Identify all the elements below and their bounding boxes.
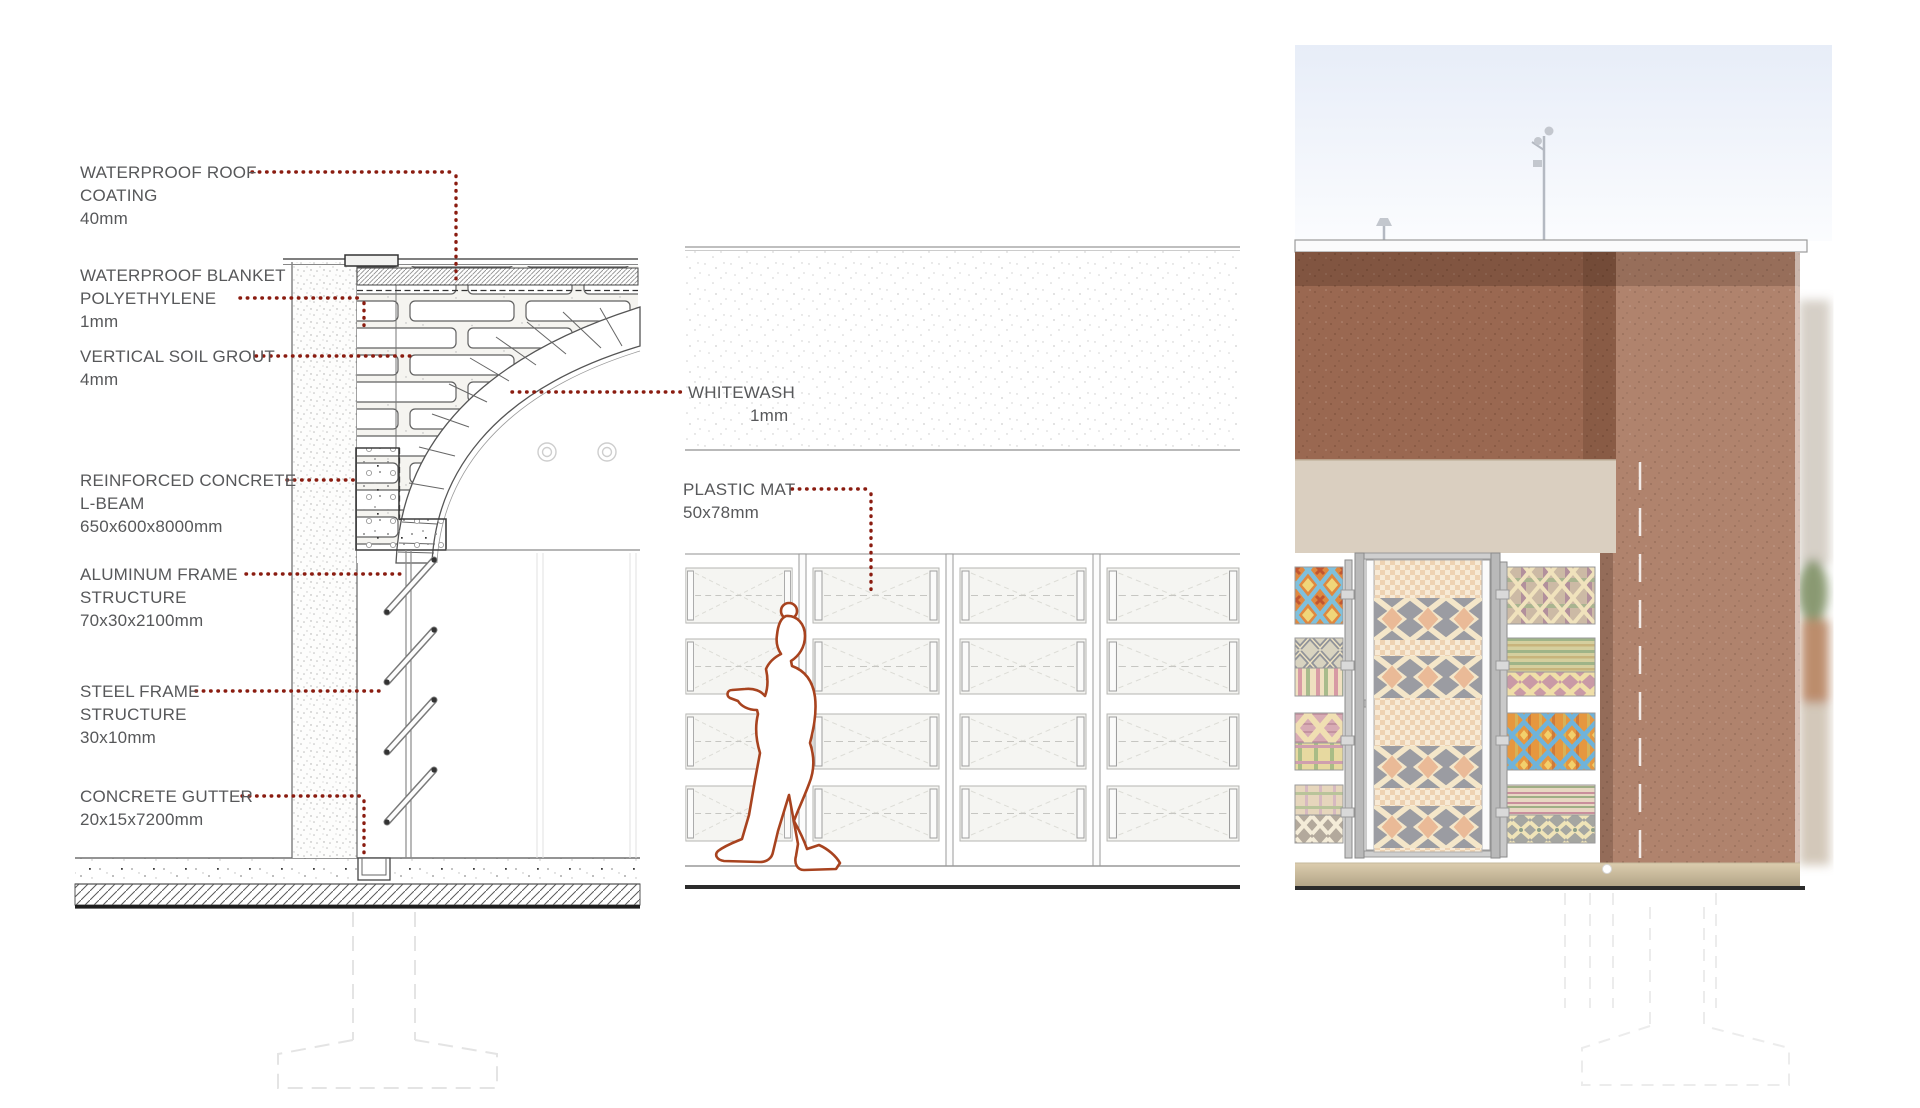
callout-aluminum-frame: ALUMINUM FRAME STRUCTURE 70x30x2100mm — [80, 563, 238, 632]
roof-edge — [283, 255, 638, 266]
plaster-band — [1295, 460, 1616, 553]
render-base — [1295, 863, 1805, 890]
callout-steel-frame: STEEL FRAME STRUCTURE 30x10mm — [80, 680, 200, 749]
roof-coating — [357, 268, 638, 285]
callout-waterproof-blanket: WATERPROOF BLANKET POLYETHYLENE 1mm — [80, 264, 286, 333]
background-blur — [1798, 300, 1830, 865]
interior-circles — [538, 443, 616, 461]
sky — [1295, 45, 1832, 241]
soil-wall — [292, 262, 357, 858]
render-roof — [1295, 240, 1807, 252]
callout-whitewash: WHITEWASH 1mm — [688, 381, 795, 427]
detail-board: WATERPROOF ROOF COATING 40mm WATERPROOF … — [0, 0, 1920, 1108]
textile-column-center — [1355, 553, 1500, 858]
section-ground-line — [75, 905, 640, 909]
callout-roof-coating: WATERPROOF ROOF COATING 40mm — [80, 161, 257, 230]
ghost-footing-right — [1565, 893, 1789, 1085]
facade-render — [1295, 45, 1832, 1085]
aluminum-frame — [406, 550, 411, 858]
adobe-wall-upper — [1295, 252, 1616, 460]
ghost-footing-left — [278, 912, 497, 1088]
elevation-ground-line — [685, 885, 1240, 889]
drawing-canvas — [0, 0, 1920, 1108]
interior-lines — [537, 553, 636, 858]
callout-soil-grout: VERTICAL SOIL GROUT 4mm — [80, 345, 275, 391]
adobe-tower-wall — [1600, 252, 1800, 880]
interior-elevation — [685, 247, 1240, 889]
callout-gutter: CONCRETE GUTTER 20x15x7200mm — [80, 785, 253, 831]
callout-l-beam: REINFORCED CONCRETE L-BEAM 650x600x8000m… — [80, 469, 296, 538]
concrete-gutter — [358, 858, 390, 880]
callout-plastic-mat: PLASTIC MAT 50x78mm — [683, 478, 795, 524]
